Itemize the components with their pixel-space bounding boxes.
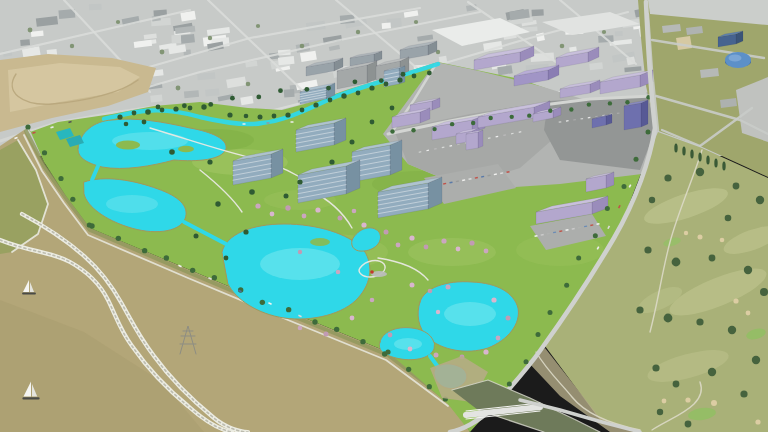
blue-dome-building xyxy=(725,52,751,68)
aerial-render-figure xyxy=(0,0,768,432)
aerial-rendering-canvas xyxy=(0,0,768,432)
playground-structure xyxy=(370,270,374,274)
